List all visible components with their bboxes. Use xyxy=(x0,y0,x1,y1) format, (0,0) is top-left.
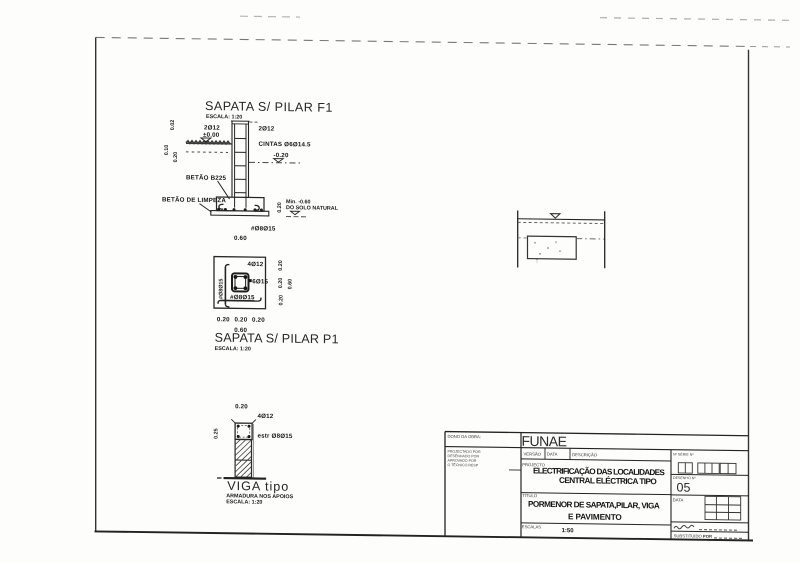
svg-text:4Ø12: 4Ø12 xyxy=(248,261,264,268)
svg-text:0.20: 0.20 xyxy=(235,403,248,410)
svg-text:SAPATA S/ PILAR F1: SAPATA S/ PILAR F1 xyxy=(205,99,333,115)
svg-text:ESCALA: 1:20: ESCALA: 1:20 xyxy=(226,499,262,505)
svg-text:0.60: 0.60 xyxy=(288,279,294,290)
svg-text:DONO DA OBRA:: DONO DA OBRA: xyxy=(447,434,481,439)
svg-text:0.20: 0.20 xyxy=(217,316,230,323)
svg-text:DATA: DATA xyxy=(673,497,684,502)
svg-text:1:50: 1:50 xyxy=(562,528,575,534)
svg-text:0.10: 0.10 xyxy=(164,145,170,156)
svg-text:O TÉCNICO RESP: O TÉCNICO RESP xyxy=(447,462,478,467)
svg-text:DESCRIÇÃO: DESCRIÇÃO xyxy=(572,452,598,457)
svg-text:0.20: 0.20 xyxy=(277,202,283,213)
svg-text:0.20: 0.20 xyxy=(235,316,248,323)
svg-text:-0.20: -0.20 xyxy=(274,152,289,159)
svg-text:PORMENOR DE SAPATA,PILAR, VIGA: PORMENOR DE SAPATA,PILAR, VIGA xyxy=(528,500,660,511)
svg-text:2Ø12: 2Ø12 xyxy=(204,124,220,131)
svg-text:SAPATA S/ PILAR P1: SAPATA S/ PILAR P1 xyxy=(215,331,340,347)
svg-text:VIGA tipo: VIGA tipo xyxy=(227,479,289,494)
svg-text:BETÃO DE LIMPEZA: BETÃO DE LIMPEZA xyxy=(162,196,226,204)
svg-text:ELECTRIFICAÇÃO DAS LOCALIDADES: ELECTRIFICAÇÃO DAS LOCALIDADES xyxy=(533,465,665,477)
svg-text:2Ø12: 2Ø12 xyxy=(259,125,275,132)
svg-text:#Ø8Ø15: #Ø8Ø15 xyxy=(251,225,276,232)
svg-text:0.20: 0.20 xyxy=(173,152,179,163)
svg-text:Nº SÉRIE Nº: Nº SÉRIE Nº xyxy=(673,451,694,456)
svg-text:05: 05 xyxy=(677,481,691,495)
svg-text:estr Ø8Ø15: estr Ø8Ø15 xyxy=(258,433,293,440)
svg-text:0.20: 0.20 xyxy=(278,278,284,289)
svg-text:ESCALA: 1:20: ESCALA: 1:20 xyxy=(206,114,242,120)
svg-text:#Ø8Ø15: #Ø8Ø15 xyxy=(219,279,225,299)
svg-text:BETÃO B225: BETÃO B225 xyxy=(186,174,227,182)
svg-text:ESCALA: 1:20: ESCALA: 1:20 xyxy=(215,346,251,352)
svg-text:VERSÃO: VERSÃO xyxy=(524,451,542,456)
svg-text:6Ø15: 6Ø15 xyxy=(252,278,268,285)
svg-text:DATA: DATA xyxy=(547,452,558,457)
svg-text:CINTAS Ø6Ø14.5: CINTAS Ø6Ø14.5 xyxy=(259,141,312,149)
svg-text:SUBSTITUÍDO POR: SUBSTITUÍDO POR xyxy=(674,533,712,539)
svg-text:E PAVIMENTO: E PAVIMENTO xyxy=(568,512,622,522)
svg-text:TÍTULO: TÍTULO xyxy=(522,493,538,498)
svg-text:CENTRAL ELÉCTRICA TIPO: CENTRAL ELÉCTRICA TIPO xyxy=(559,475,657,486)
svg-text:4Ø12: 4Ø12 xyxy=(258,413,274,420)
svg-text:0.02: 0.02 xyxy=(170,120,176,131)
svg-text:ESCALAS: ESCALAS xyxy=(522,524,542,529)
svg-text:0.20: 0.20 xyxy=(279,295,285,306)
svg-text:0.20: 0.20 xyxy=(278,260,284,271)
svg-text:0.60: 0.60 xyxy=(234,235,247,242)
svg-text:0.20: 0.20 xyxy=(252,317,265,324)
svg-text:0.25: 0.25 xyxy=(214,428,220,439)
svg-text:FUNAE: FUNAE xyxy=(522,433,569,450)
